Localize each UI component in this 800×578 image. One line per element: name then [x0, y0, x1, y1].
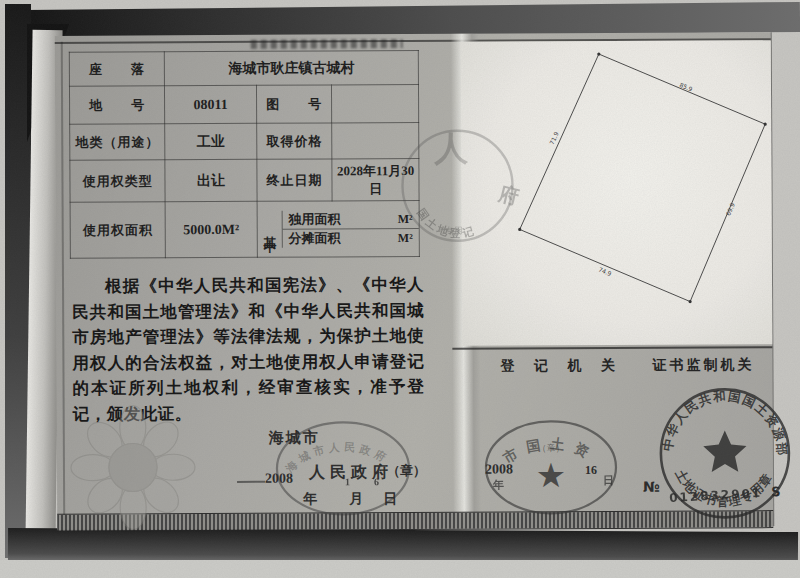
certificate-table: 座 落 海城市耿庄镇古城村 地 号 08011 图 号 地类（用途） 工业 取得…	[69, 50, 420, 259]
registry-stamp-seal-mark: （章）	[537, 443, 564, 453]
parcel-plot-diagram: 85.9 71.9 69.9 74.9	[461, 40, 773, 346]
map-label: 图 号	[256, 85, 332, 123]
side-length-bottom: 74.9	[598, 266, 613, 278]
diagram-bottom-rule	[452, 346, 772, 350]
table-row: 地 号 08011 图 号	[69, 84, 418, 124]
issuer-month-char: 月	[349, 490, 363, 508]
landuse-value: 工业	[165, 123, 257, 159]
table-row: 座 落 海城市耿庄镇古城村	[69, 50, 418, 86]
faint-seal-sub-text: 专用	[445, 226, 463, 236]
landuse-label: 地类（用途）	[70, 124, 166, 160]
tenure-value: 出让	[165, 159, 257, 201]
table-row: 使用权面积 5000.0M² 其中 独用面积 M² 分摊面积 M²	[70, 200, 419, 258]
exclusive-area-label: 独用面积	[288, 210, 340, 228]
table-row: 使用权类型 出让 终止日期 2028年11月30 日	[70, 158, 419, 202]
issuer-day-char: 日	[383, 490, 397, 508]
registry-day-value: 16	[585, 463, 597, 478]
price-label: 取得价格	[256, 123, 332, 159]
star-icon	[703, 430, 746, 472]
page-left-rule	[61, 42, 66, 520]
map-value	[332, 84, 419, 122]
flower-emblem-watermark	[67, 401, 200, 534]
registry-day-char: 日	[603, 473, 614, 488]
area-value: 5000.0M²	[165, 201, 257, 257]
issuer-year-value: 2008	[265, 471, 293, 487]
registry-year-char: 年	[493, 478, 504, 493]
issuer-year-char: 年	[303, 491, 317, 509]
scanned-land-certificate: 座 落 海城市耿庄镇古城村 地 号 08011 图 号 地类（用途） 工业 取得…	[0, 0, 800, 578]
among-label: 其中	[257, 211, 282, 248]
scan-bottom-margin	[0, 560, 800, 578]
area-label: 使用权面积	[70, 202, 166, 258]
header-smudged-text	[251, 39, 403, 49]
expiry-label: 终止日期	[257, 159, 333, 201]
form-line	[237, 481, 265, 483]
registry-year-value: 2008	[485, 461, 513, 477]
location-value: 海城市耿庄镇古城村	[165, 50, 419, 85]
tenure-label: 使用权类型	[70, 160, 166, 202]
side-length-right: 69.9	[724, 202, 736, 217]
registry-authority-title: 登 记 机 关	[500, 357, 623, 376]
serial-number-label: №	[643, 479, 660, 495]
certificate-page: 座 落 海城市耿庄镇古城村 地 号 08011 图 号 地类（用途） 工业 取得…	[55, 32, 775, 530]
location-label: 座 落	[69, 52, 165, 86]
parcel-label: 地 号	[69, 86, 165, 124]
issuer-day-digits: 16	[345, 476, 403, 487]
supervisor-stamp: 中华人民共和国国土资源部 土地证书管理专用章	[649, 380, 800, 531]
supervisor-authority-title: 证书监制机关	[652, 356, 754, 375]
issuer-city: 海城市	[269, 428, 320, 447]
parcel-value: 08011	[165, 85, 257, 123]
star-icon: ★	[536, 457, 567, 494]
apportioned-area-label: 分摊面积	[289, 229, 341, 247]
serial-number-suffix: S	[771, 484, 780, 499]
table-row: 地类（用途） 工业 取得价格	[70, 122, 419, 160]
